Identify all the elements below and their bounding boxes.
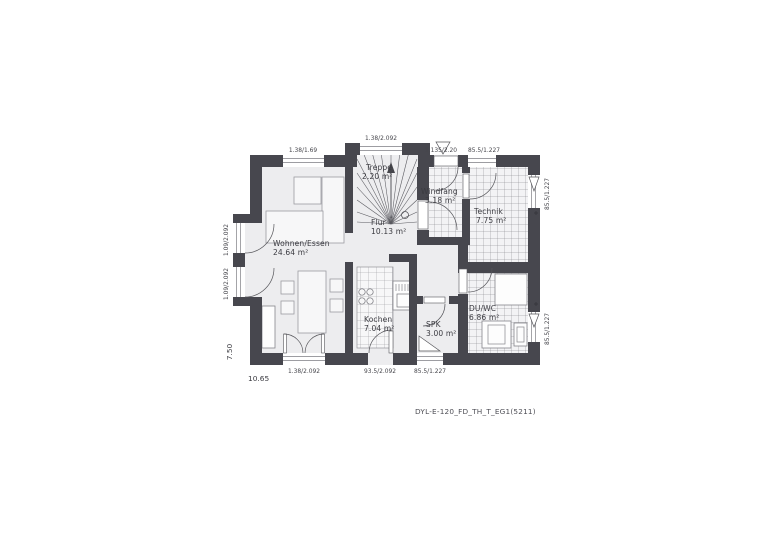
room-label-flur-name: Flur	[371, 218, 387, 227]
room-label-kochen-name: Kochen	[364, 315, 392, 324]
window-stair-bay	[360, 143, 402, 155]
room-label-kochen-area: 7.04 m²	[364, 324, 394, 333]
dim-right-duwc-window: 85.5/1.227	[545, 313, 551, 345]
dim-top-technik-window: 85.5/1.227	[468, 148, 500, 154]
room-label-windfang-name: Windfang	[421, 187, 458, 196]
window-right-duwc	[528, 312, 540, 342]
window-right-technik	[528, 175, 540, 208]
dim-bottom-kitchen-door: 93.5/2.092	[364, 369, 396, 375]
dim-top-stair-window: 1.38/2.092	[365, 136, 397, 142]
cooktop-burner-icon	[367, 298, 373, 304]
room-label-technik-area: 7.75 m²	[476, 216, 506, 225]
cooktop-burner-icon	[367, 289, 373, 295]
room-label-windfang-area: 3.18 m²	[425, 196, 455, 205]
dim-entrance-door: 1.135/2.20	[425, 148, 457, 154]
cooktop-burner-icon	[359, 298, 365, 304]
dim-overall-depth: 7.50	[225, 343, 234, 360]
plan-caption: DYL-E-120_FD_TH_T_EG1(5211)	[415, 407, 536, 416]
wc-icon	[514, 323, 527, 346]
room-label-spk-area: 3.00 m²	[426, 329, 456, 338]
room-label-duwc-area: 6.86 m²	[469, 313, 499, 322]
room-label-flur-area: 10.13 m²	[371, 227, 406, 236]
dim-top-living-window: 1.38/1.69	[289, 148, 317, 154]
floor-plan-page: Wohnen/Essen 24.64 m² Treppe 2.20 m² Flu…	[0, 0, 768, 560]
room-label-duwc-name: DU/WC	[469, 304, 496, 313]
room-label-technik-name: Technik	[473, 207, 504, 216]
dim-left-upper-window: 1.09/2.092	[224, 224, 230, 256]
shower-icon	[495, 274, 527, 305]
dim-bottom-spk-window: 85.5/1.227	[414, 369, 446, 375]
dim-bottom-terrace-door: 1.38/2.092	[288, 369, 320, 375]
room-label-treppe-area: 2.20 m²	[362, 172, 392, 181]
room-label-wohnen-area: 24.64 m²	[273, 248, 308, 257]
dim-left-lower-window: 1.09/2.092	[224, 268, 230, 300]
window-top-living	[283, 155, 324, 167]
window-top-technik	[468, 155, 496, 167]
dim-overall-width: 10.65	[248, 374, 269, 383]
room-label-spk-name: SPK	[426, 320, 442, 329]
room-label-treppe-name: Treppe	[365, 163, 392, 172]
cooktop-burner-icon	[359, 289, 365, 295]
floor-plan-drawing: Wohnen/Essen 24.64 m² Treppe 2.20 m² Flu…	[0, 0, 768, 560]
room-label-wohnen-name: Wohnen/Essen	[273, 239, 330, 248]
dim-right-technik-window: 85.5/1.227	[545, 178, 551, 210]
